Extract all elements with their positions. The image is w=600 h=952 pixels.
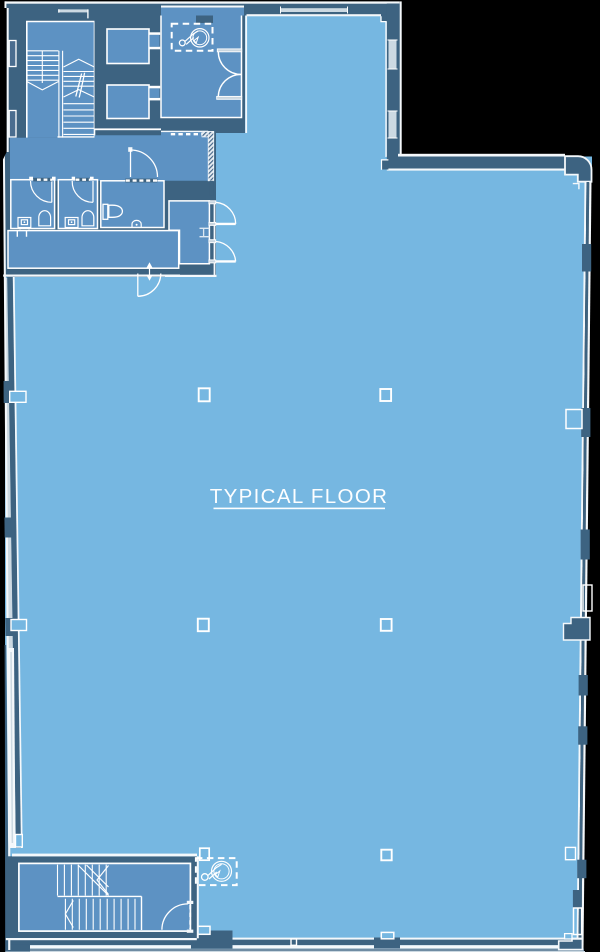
svg-text:TYPICAL FLOOR: TYPICAL FLOOR	[210, 485, 389, 508]
